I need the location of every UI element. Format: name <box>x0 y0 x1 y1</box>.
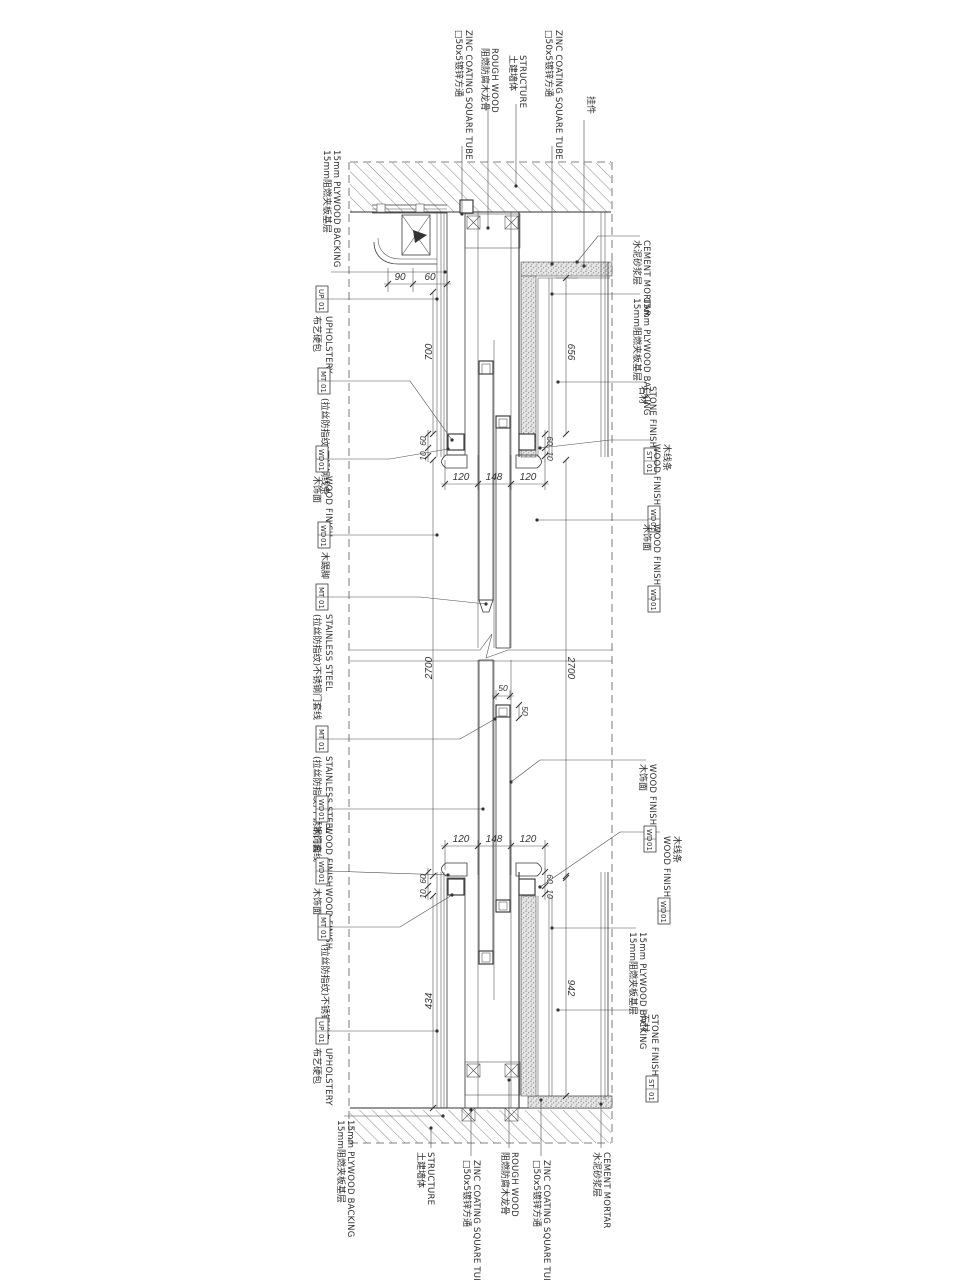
label-rough-t-en: ROUGH WOOD <box>489 48 499 113</box>
svg-text:10: 10 <box>545 451 555 461</box>
svg-text:148: 148 <box>486 834 503 845</box>
svg-text:MT: MT <box>317 587 325 598</box>
svg-text:STAINLESS STEEL: STAINLESS STEEL <box>323 614 333 691</box>
dim-700: 700 <box>424 343 435 360</box>
svg-text:01: 01 <box>317 600 325 609</box>
tag-wood-finish-r2: WOOD FINISH 木饰面 WD 01 <box>641 524 661 612</box>
svg-text:WD: WD <box>645 829 653 841</box>
label-structure-t-en: STRUCTURE <box>517 55 527 108</box>
label-cement-b-en: CEMENT MORTAR <box>601 1152 611 1228</box>
svg-text:01: 01 <box>319 384 327 393</box>
svg-text:434: 434 <box>424 992 435 1009</box>
svg-text:木踢脚: 木踢脚 <box>319 552 331 579</box>
cornice-bracket-detail <box>372 204 447 264</box>
label-structure-t-cn: 土建墙体 <box>507 55 519 91</box>
tag-wood-molding-r1: WOOD FINISH 木线条 WD 01 <box>648 444 673 532</box>
svg-text:(拉丝防指纹)不锈钢门套线: (拉丝防指纹)不锈钢门套线 <box>311 614 323 720</box>
svg-text:WOOD FINISH: WOOD FINISH <box>661 836 671 897</box>
label-cement-b-cn: 水泥砂浆层 <box>591 1152 603 1197</box>
label-cement-t-cn: 水泥砂浆层 <box>631 240 643 285</box>
door-leaf-left <box>479 361 493 964</box>
svg-text:120: 120 <box>520 472 537 483</box>
svg-text:木饰面: 木饰面 <box>637 764 649 791</box>
svg-text:布艺硬包: 布艺硬包 <box>311 1048 323 1084</box>
svg-text:WOOD FINISH: WOOD FINISH <box>647 764 657 825</box>
label-hanger-cn: 挂件 <box>585 96 597 114</box>
svg-text:WD: WD <box>317 449 325 461</box>
svg-text:10: 10 <box>545 889 555 899</box>
svg-text:ST: ST <box>647 1079 655 1088</box>
tag-stone-r2: STONE FINISH 石材 ST 01 <box>639 1014 659 1102</box>
label-plywood-bl-en: 15mm PLYWOOD BACKING <box>345 1120 355 1238</box>
svg-text:120: 120 <box>453 834 470 845</box>
svg-text:01: 01 <box>317 1034 325 1043</box>
svg-text:STONE FINISH: STONE FINISH <box>649 1014 659 1076</box>
svg-text:60: 60 <box>545 436 555 446</box>
label-plywood-bl-cn: 15mm阻燃夹板基层 <box>335 1120 347 1203</box>
tag-skirting: WD 01 木踢脚 <box>318 522 331 579</box>
label-zinc-b1-en: ZINC COATING SQUARE TUBE <box>471 1160 481 1280</box>
svg-text:木饰面: 木饰面 <box>311 826 323 853</box>
svg-text:148: 148 <box>486 472 503 483</box>
tag-wood-finish-r3: WOOD FINISH 木饰面 WD 01 <box>637 764 657 852</box>
svg-text:60: 60 <box>418 436 428 446</box>
label-rough-b-en: ROUGH WOOD <box>509 1152 519 1217</box>
svg-text:2700: 2700 <box>565 656 576 680</box>
svg-text:01: 01 <box>319 930 327 939</box>
svg-text:布艺硬包: 布艺硬包 <box>311 316 323 352</box>
left-wall-top <box>437 212 478 648</box>
svg-text:UP: UP <box>317 289 325 298</box>
svg-text:木线条: 木线条 <box>671 836 683 863</box>
svg-text:STONE FINISH: STONE FINISH <box>647 386 657 448</box>
svg-text:01: 01 <box>319 538 327 547</box>
svg-text:WD: WD <box>649 589 657 601</box>
label-structure-b-cn: 土建墙体 <box>415 1152 427 1188</box>
svg-text:木线条: 木线条 <box>661 444 673 471</box>
svg-text:2700: 2700 <box>424 656 435 680</box>
label-zinc-t2-cn: □50x5镀锌方通 <box>543 30 555 97</box>
svg-text:UPHOLSTERY: UPHOLSTERY <box>323 316 333 374</box>
label-zinc-b1-cn: □50x5镀锌方通 <box>461 1160 473 1227</box>
svg-text:01: 01 <box>317 302 325 311</box>
svg-text:WOOD FINISH: WOOD FINISH <box>651 444 661 505</box>
svg-text:01: 01 <box>659 914 667 923</box>
svg-text:120: 120 <box>520 834 537 845</box>
svg-text:MT: MT <box>319 371 327 382</box>
svg-text:01: 01 <box>317 812 325 821</box>
label-zinc-t1-en: ZINC COATING SQUARE TUBE <box>463 30 473 160</box>
svg-text:120: 120 <box>453 472 470 483</box>
left-wall-bottom <box>437 660 478 1108</box>
label-ply-r1-cn: 15mm阻燃夹板基层 <box>631 298 643 381</box>
svg-text:50: 50 <box>520 706 530 716</box>
dim-60-top: 60 <box>424 272 436 283</box>
svg-text:木饰面: 木饰面 <box>641 524 653 551</box>
svg-text:MT: MT <box>317 729 325 740</box>
label-plywood-tl-cn: 15mm阻燃夹板基层 <box>321 150 333 233</box>
svg-text:10: 10 <box>418 889 428 899</box>
dim-656: 656 <box>565 344 576 361</box>
label-ply-r2-cn: 15mm阻燃夹板基层 <box>627 932 639 1015</box>
svg-text:60: 60 <box>418 874 428 884</box>
bottom-slab <box>350 1096 612 1143</box>
svg-text:UP: UP <box>317 1021 325 1030</box>
label-zinc-t2-en: ZINC COATING SQUARE TUBE <box>553 30 563 160</box>
svg-text:MT: MT <box>319 917 327 928</box>
svg-text:WD: WD <box>317 861 325 873</box>
svg-text:石材: 石材 <box>637 386 649 404</box>
svg-text:01: 01 <box>317 742 325 751</box>
label-zinc-t1-cn: □50x5镀锌方通 <box>453 30 465 97</box>
svg-text:UPHOLSTERY: UPHOLSTERY <box>323 1048 333 1106</box>
svg-text:50: 50 <box>498 683 508 693</box>
svg-text:01: 01 <box>647 1092 655 1101</box>
cad-detail-sheet: 90 60 700 656 60 10 60 10 120 148 120 27… <box>0 0 960 1280</box>
label-plywood-tl-en: 15mm PLYWOOD BACKING <box>331 150 341 268</box>
svg-text:WD: WD <box>649 509 657 521</box>
svg-text:WD: WD <box>317 799 325 811</box>
svg-text:01: 01 <box>649 602 657 611</box>
tag-ss-frame-top: MT 01 STAINLESS STEEL (拉丝防指纹)不锈钢门套线 <box>311 584 333 720</box>
label-structure-b-en: STRUCTURE <box>425 1152 435 1205</box>
svg-text:WD: WD <box>319 525 327 537</box>
label-zinc-b2-en: ZINC COATING SQUARE TUBE <box>541 1160 551 1280</box>
svg-text:01: 01 <box>317 462 325 471</box>
svg-text:WOOD FINISH: WOOD FINISH <box>651 524 661 585</box>
svg-text:WD: WD <box>659 901 667 913</box>
svg-text:石材: 石材 <box>639 1014 651 1032</box>
right-wall-bottom <box>511 660 608 1108</box>
right-wall-top <box>511 212 612 648</box>
label-rough-t-cn: 阻燃防腐木龙骨 <box>479 48 491 111</box>
svg-text:942: 942 <box>565 980 576 997</box>
annotations: 15mm PLYWOOD BACKING 15mm阻燃夹板基层 UP 01 UP… <box>311 30 683 1280</box>
label-zinc-b2-cn: □50x5镀锌方通 <box>531 1160 543 1227</box>
svg-text:01: 01 <box>645 842 653 851</box>
svg-text:木饰面: 木饰面 <box>311 476 323 503</box>
svg-text:木饰面: 木饰面 <box>311 888 323 915</box>
label-rough-b-cn: 阻燃防腐木龙骨 <box>499 1152 511 1215</box>
tag-wood-molding-r4: WOOD FINISH 木线条 WD 01 <box>658 836 683 924</box>
dim-90: 90 <box>394 272 406 283</box>
svg-text:01: 01 <box>317 874 325 883</box>
